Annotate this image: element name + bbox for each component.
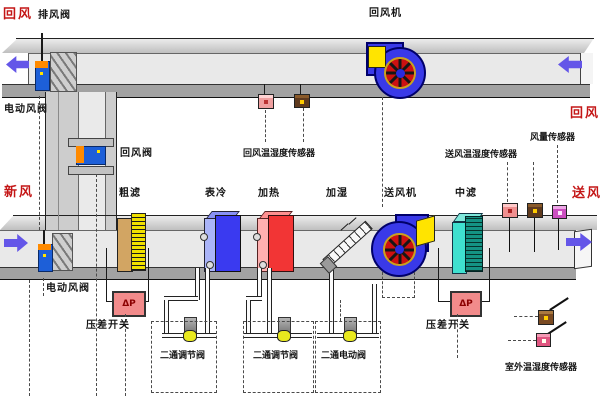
dp-switch-right-icon: ΔP (450, 291, 482, 317)
control-line (29, 280, 30, 396)
label-valve-heating: 二通调节阀 (253, 348, 298, 361)
return-damper-indicator (97, 150, 100, 153)
return-temp-humidity-sensor2-icon (294, 94, 310, 108)
label-outdoor-sensor: 室外温湿度传感器 (505, 360, 577, 373)
cube-top (295, 95, 309, 98)
outdoor-sensor2-link (508, 340, 536, 341)
exhaust-valve-actuator-cap (35, 61, 48, 68)
return-damper-flange-bottom (68, 166, 114, 175)
vertical-duct-divider (58, 92, 59, 230)
airflow-sensor-probe (558, 216, 559, 250)
cube-top (553, 206, 566, 209)
outdoor-temp-sensor-icon (538, 310, 554, 325)
dp-symbol: ΔP (122, 299, 136, 309)
hvac-system-diagram: ΔP ΔP (0, 0, 600, 400)
control-line (557, 145, 558, 203)
label-supply-air-sensor: 送风温湿度传感器 (445, 147, 517, 160)
label-return-air-sensor: 回风温湿度传感器 (243, 146, 315, 159)
fresh-damper-blades-icon (52, 233, 73, 271)
control-line (340, 300, 341, 321)
label-return-fan: 回风机 (369, 4, 402, 19)
return-fan-impeller-icon (384, 57, 416, 89)
label-coarse-filter: 粗滤 (119, 184, 141, 199)
control-line (265, 110, 266, 142)
heating-pipe-fitting-top (253, 233, 261, 241)
cooling-pipe-jog (164, 296, 198, 301)
dp2-wire-left (438, 248, 439, 302)
control-line (96, 174, 97, 396)
label-exhaust-valve: 排风阀 (38, 6, 71, 21)
cube-dot (300, 100, 304, 104)
heating-coil-face (268, 215, 294, 272)
return-duct-top-edge (16, 38, 594, 39)
label-supply-air: 送风 (572, 182, 600, 201)
cube-dot (542, 339, 546, 343)
fresh-valve-actuator-cap (38, 244, 51, 250)
dp-switch-left-icon: ΔP (112, 291, 146, 317)
label-supply-fan: 送风机 (384, 184, 417, 199)
return-duct-top-face (2, 38, 594, 53)
label-mid-filter: 中滤 (455, 184, 477, 199)
label-dp-switch-right: 压差开关 (426, 316, 470, 331)
label-humidifier: 加湿 (326, 184, 348, 199)
supply-fan-impeller-icon (383, 233, 416, 266)
cube-top (528, 204, 542, 207)
supply-fan-outlet (416, 215, 435, 246)
label-electric-damper-bottom: 电动风阀 (46, 279, 90, 294)
outdoor-sensor1-probe (549, 297, 569, 311)
cube-dot (264, 100, 268, 104)
coarse-filter-media-icon (131, 213, 146, 271)
airflow-sensor-icon (552, 205, 567, 219)
supply-sensor2-probe (534, 215, 535, 252)
control-line (382, 97, 383, 207)
supply-fan-control-box (382, 272, 415, 298)
return-fan-inlet (368, 46, 386, 68)
label-dp-switch-left: 压差开关 (86, 316, 130, 331)
exhaust-valve-indicator (40, 72, 43, 75)
cube-dot (508, 209, 512, 213)
outdoor-humidity-sensor-icon (536, 333, 551, 347)
cube-top (537, 334, 550, 337)
cube-top (539, 311, 553, 314)
return-duct-body (2, 53, 590, 85)
label-valve-humidifier: 二通电动阀 (321, 348, 366, 361)
control-line (43, 278, 44, 296)
outdoor-sensor1-link (514, 316, 538, 317)
label-return-air-right: 回风 (570, 102, 600, 121)
control-line (39, 96, 40, 230)
cube-dot (558, 211, 562, 215)
dp1-wire-left (106, 248, 107, 302)
label-airflow-sensor: 风量传感器 (530, 130, 575, 143)
label-cooling-coil: 表冷 (205, 184, 227, 199)
cube-dot (533, 209, 537, 213)
exhaust-valve-stem (41, 33, 43, 62)
supply-sensor1-probe (509, 215, 510, 252)
label-valve-cooling: 二通调节阀 (160, 348, 205, 361)
cooling-coil-face (215, 215, 241, 272)
exhaust-damper-blades-icon (50, 52, 77, 92)
fresh-damper-stem (43, 230, 45, 245)
dp1-wire-right (148, 248, 149, 302)
return-temp-humidity-sensor-icon (258, 94, 274, 109)
label-return-damper: 回风阀 (120, 144, 153, 159)
label-return-air-top: 回风 (3, 3, 33, 22)
return-damper-actuator-cap (76, 146, 84, 163)
control-line (303, 108, 304, 142)
control-line (533, 162, 534, 202)
dp-symbol: ΔP (459, 299, 473, 309)
cube-dot (544, 316, 548, 320)
impeller-hub (395, 245, 404, 254)
label-electric-damper-top: 电动风阀 (4, 100, 48, 115)
heating-pipe-fitting-bottom (259, 261, 267, 269)
label-fresh-air: 新风 (4, 181, 34, 200)
supply-temp-humidity-sensor2-icon (527, 203, 543, 218)
dp2-wire-right (489, 248, 490, 302)
control-line (507, 162, 508, 202)
return-duct-right-endcap (580, 53, 593, 84)
cooling-pipe-fitting-top (200, 233, 208, 241)
cooling-pipe-fitting-bottom (206, 261, 214, 269)
cube-top (503, 204, 517, 207)
supply-temp-humidity-sensor-icon (502, 203, 518, 218)
cube-top (259, 95, 273, 98)
supply-duct-right-endcap (574, 229, 592, 270)
mid-filter-media-icon (465, 216, 483, 272)
label-heating-coil: 加热 (258, 184, 280, 199)
impeller-hub (396, 69, 405, 78)
fresh-valve-indicator (43, 254, 46, 257)
